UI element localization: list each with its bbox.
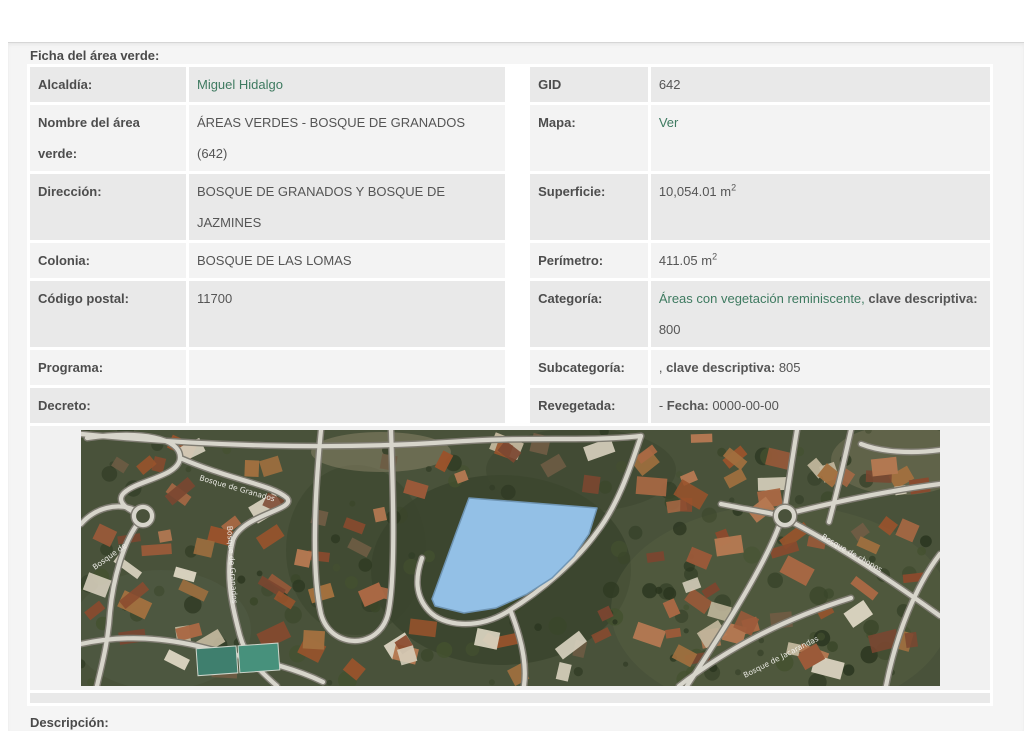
row-alcaldia-gid: Alcaldía: Miguel Hidalgo GID 642 bbox=[30, 67, 990, 102]
column-spacer bbox=[508, 388, 527, 423]
perimetro-number: 411.05 m bbox=[659, 253, 712, 268]
subcategoria-label: Subcategoría: bbox=[530, 350, 648, 385]
subcategoria-prefix: , bbox=[659, 360, 663, 375]
map-cell: Bosque de Granados Bosque de Granados Bo… bbox=[30, 426, 990, 690]
programa-value bbox=[189, 350, 505, 385]
perimetro-sup: 2 bbox=[712, 252, 717, 262]
column-spacer bbox=[508, 350, 527, 385]
descripcion-title: Descripción: bbox=[30, 714, 1024, 731]
empty-row bbox=[30, 693, 990, 703]
superficie-value: 10,054.01 m2 bbox=[651, 174, 990, 240]
satellite-map: Bosque de Granados Bosque de Granados Bo… bbox=[81, 430, 940, 686]
colonia-value: BOSQUE DE LAS LOMAS bbox=[189, 243, 505, 278]
categoria-code: 800 bbox=[659, 322, 681, 337]
perimetro-label: Perímetro: bbox=[530, 243, 648, 278]
alcaldia-link[interactable]: Miguel Hidalgo bbox=[197, 77, 283, 92]
codigo-postal-label: Código postal: bbox=[30, 281, 186, 347]
row-cp-categoria: Código postal: 11700 Categoría: Áreas co… bbox=[30, 281, 990, 347]
mapa-ver-link[interactable]: Ver bbox=[659, 115, 679, 130]
categoria-bold: clave descriptiva: bbox=[868, 291, 977, 306]
map-row: Bosque de Granados Bosque de Granados Bo… bbox=[30, 426, 990, 690]
content-panel: Ficha del área verde: Alcaldía: Miguel H… bbox=[8, 42, 1024, 731]
revegetada-label: Revegetada: bbox=[530, 388, 648, 423]
alcaldia-value: Miguel Hidalgo bbox=[189, 67, 505, 102]
superficie-label: Superficie: bbox=[530, 174, 648, 240]
subcategoria-value: , clave descriptiva: 805 bbox=[651, 350, 990, 385]
page-title: Ficha del área verde: bbox=[30, 47, 1024, 64]
empty-strip bbox=[30, 693, 990, 703]
column-spacer bbox=[508, 281, 527, 347]
direccion-label: Dirección: bbox=[30, 174, 186, 240]
roundabout-right bbox=[776, 507, 794, 525]
programa-label: Programa: bbox=[30, 350, 186, 385]
gid-value: 642 bbox=[651, 67, 990, 102]
revegetada-value: - Fecha: 0000-00-00 bbox=[651, 388, 990, 423]
column-spacer bbox=[508, 174, 527, 240]
roundabout-left bbox=[134, 507, 152, 525]
subcategoria-code: 805 bbox=[779, 360, 801, 375]
row-decreto-revegetada: Decreto: Revegetada: - Fecha: 0000-00-00 bbox=[30, 388, 990, 423]
decreto-label: Decreto: bbox=[30, 388, 186, 423]
categoria-label: Categoría: bbox=[530, 281, 648, 347]
row-direccion-superficie: Dirección: BOSQUE DE GRANADOS Y BOSQUE D… bbox=[30, 174, 990, 240]
decreto-value bbox=[189, 388, 505, 423]
colonia-label: Colonia: bbox=[30, 243, 186, 278]
revegetada-date: 0000-00-00 bbox=[712, 398, 779, 413]
superficie-number: 10,054.01 m bbox=[659, 184, 731, 199]
row-nombre-mapa: Nombre del área verde: ÁREAS VERDES - BO… bbox=[30, 105, 990, 171]
categoria-link[interactable]: Áreas con vegetación reminiscente, bbox=[659, 291, 865, 306]
revegetada-prefix: - bbox=[659, 398, 663, 413]
direccion-value: BOSQUE DE GRANADOS Y BOSQUE DE JAZMINES bbox=[189, 174, 505, 240]
mapa-value: Ver bbox=[651, 105, 990, 171]
row-colonia-perimetro: Colonia: BOSQUE DE LAS LOMAS Perímetro: … bbox=[30, 243, 990, 278]
categoria-value: Áreas con vegetación reminiscente, clave… bbox=[651, 281, 990, 347]
revegetada-bold: Fecha: bbox=[667, 398, 709, 413]
nombre-value: ÁREAS VERDES - BOSQUE DE GRANADOS (642) bbox=[189, 105, 505, 171]
mapa-label: Mapa: bbox=[530, 105, 648, 171]
column-spacer bbox=[508, 243, 527, 278]
subcategoria-bold: clave descriptiva: bbox=[666, 360, 775, 375]
row-programa-subcategoria: Programa: Subcategoría: , clave descript… bbox=[30, 350, 990, 385]
alcaldia-label: Alcaldía: bbox=[30, 67, 186, 102]
perimetro-value: 411.05 m2 bbox=[651, 243, 990, 278]
nombre-label: Nombre del área verde: bbox=[30, 105, 186, 171]
column-spacer bbox=[508, 105, 527, 171]
gid-label: GID bbox=[530, 67, 648, 102]
column-spacer bbox=[508, 67, 527, 102]
codigo-postal-value: 11700 bbox=[189, 281, 505, 347]
ficha-table: Alcaldía: Miguel Hidalgo GID 642 Nombre … bbox=[27, 64, 993, 706]
superficie-sup: 2 bbox=[731, 183, 736, 193]
